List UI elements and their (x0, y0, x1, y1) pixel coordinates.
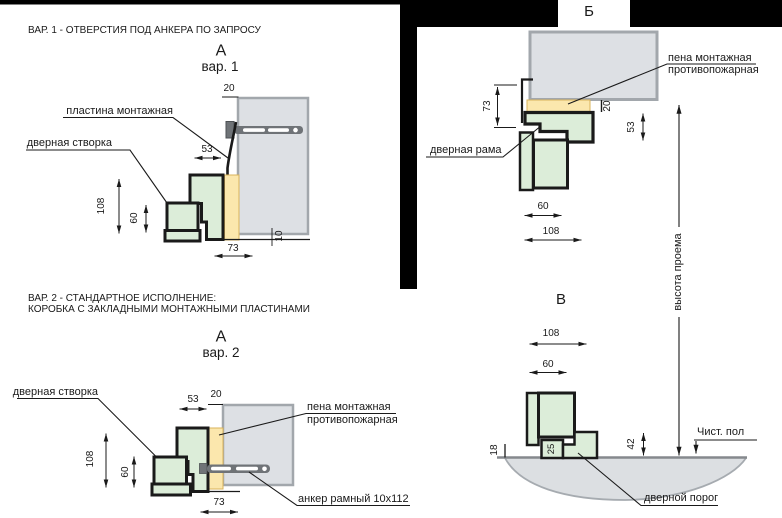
door-leaf-edge (527, 393, 539, 445)
section-a2-subtitle: вар. 2 (202, 346, 239, 360)
dim-b-20: 20 (603, 100, 614, 111)
foam-strip (527, 100, 590, 112)
dim-v-18: 18 (490, 444, 501, 455)
section-b-title: Б (584, 4, 594, 20)
section-v-title: В (556, 292, 566, 308)
door-leaf (154, 457, 187, 484)
label-clean-floor: Чист. пол (697, 427, 744, 439)
label-foam-b-line1: пена монтажная (668, 53, 752, 65)
label-foam-a2-line2: противопожарная (307, 415, 398, 427)
foam-strip (225, 175, 240, 240)
door-leaf-edge (152, 484, 191, 495)
header-var2-line2: КОРОБКА С ЗАКЛАДНЫМИ МОНТАЖНЫМИ ПЛАСТИНА… (28, 305, 310, 316)
door-leaf (167, 203, 198, 231)
clean-floor-mark (694, 440, 757, 454)
wall-block (238, 98, 308, 234)
dim-a1-60: 60 (130, 212, 141, 223)
door-leaf (534, 140, 568, 188)
header-var1: ВАР. 1 - ОТВЕРСТИЯ ПОД АНКЕРА ПО ЗАПРОСУ (28, 26, 261, 37)
dim-a1-10: 10 (275, 230, 286, 241)
dim-b-108: 108 (543, 227, 560, 238)
label-frame-anchor: анкер рамный 10x112 (298, 494, 409, 506)
header-var2-line1: ВАР. 2 - СТАНДАРТНОЕ ИСПОЛНЕНИЕ: (28, 294, 216, 305)
foam-strip (208, 428, 224, 489)
door-frame-profile (525, 113, 593, 143)
section-b-drawing (426, 32, 756, 456)
label-foam-a2-line1: пена монтажная (307, 402, 391, 414)
label-mounting-plate: пластина монтажная (66, 106, 173, 118)
dim-a1-20: 20 (223, 84, 234, 95)
dim-a1-108: 108 (97, 198, 108, 215)
label-door-leaf-a1: дверная створка (27, 138, 112, 150)
door-leaf (539, 393, 575, 437)
label-door-leaf-a2: дверная створка (13, 387, 98, 399)
label-opening-height: высота проема (673, 233, 685, 310)
dim-v-42: 42 (627, 438, 638, 449)
door-leaf-edge (165, 231, 200, 242)
dim-v-60: 60 (542, 360, 553, 371)
label-foam-b-line2: противопожарная (668, 65, 759, 77)
frame-anchor (200, 464, 271, 474)
dim-a2-73: 73 (213, 498, 224, 509)
linework-layer (0, 0, 782, 518)
label-door-frame: дверная рама (430, 145, 502, 157)
black-mask-bars (0, 0, 782, 289)
section-a1-subtitle: вар. 1 (201, 60, 238, 74)
section-v-drawing (497, 344, 757, 506)
dim-a2-60: 60 (121, 466, 132, 477)
section-a-var1-drawing (26, 97, 310, 256)
dim-b-73: 73 (483, 100, 494, 111)
dim-a1-73: 73 (227, 244, 238, 255)
dim-a2-20: 20 (210, 390, 221, 401)
dim-b-60: 60 (537, 202, 548, 213)
section-a1-title: А (216, 44, 227, 61)
wall-block (530, 32, 657, 100)
dim-v-108: 108 (543, 329, 560, 340)
section-a2-title: А (216, 330, 227, 347)
technical-drawing-canvas: ВАР. 1 - ОТВЕРСТИЯ ПОД АНКЕРА ПО ЗАПРОСУ… (0, 0, 782, 518)
label-door-threshold: дверной порог (644, 493, 718, 505)
dim-a1-53: 53 (201, 145, 212, 156)
dim-a2-53: 53 (187, 395, 198, 406)
dim-v-25: 25 (547, 444, 557, 455)
dim-b-53: 53 (627, 121, 638, 132)
dim-a2-108: 108 (86, 451, 97, 468)
